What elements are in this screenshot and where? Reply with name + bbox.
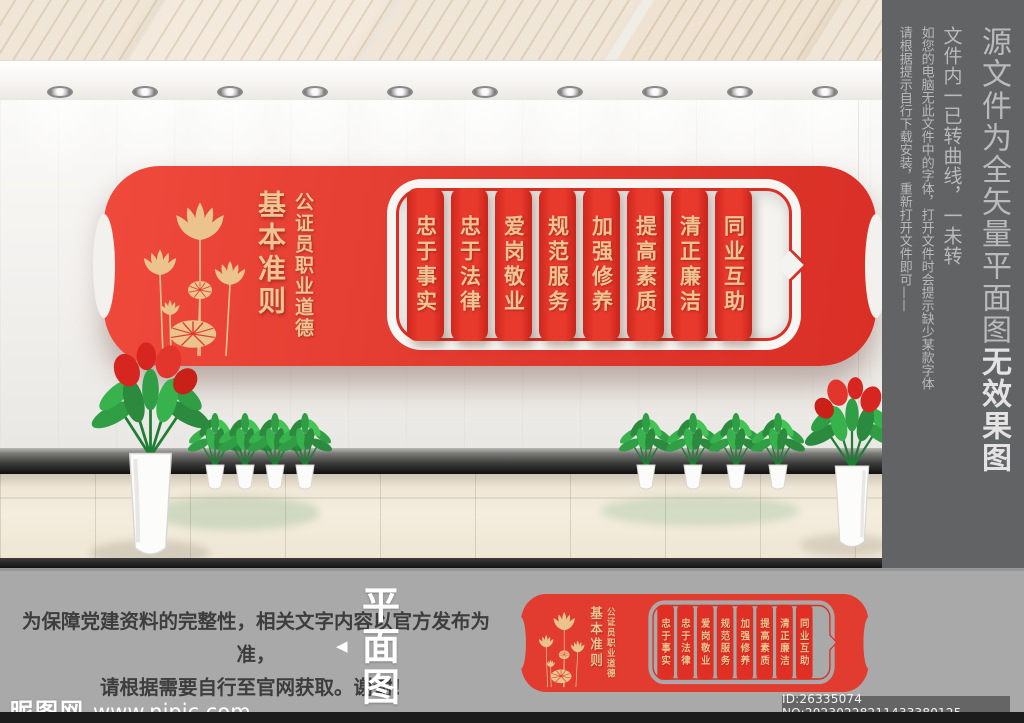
- strip-label: 加强修养: [587, 215, 617, 315]
- notes-text: 源文件为全矢量平面图无效果图 文件内一已转曲线，一未转 如您的电脑无此文件中的字…: [889, 26, 1010, 556]
- stock-preview-page: 基本准则 公证员职业道德 忠于事实 忠于法律 爱岗敬业 规范服务 加强修养 提高…: [0, 0, 1024, 723]
- ethics-strip: 清正廉洁: [671, 188, 708, 341]
- strip-label: 清正廉洁: [675, 215, 705, 315]
- spotlight-icon: [727, 86, 753, 98]
- note-title-normal: 源文件为全矢量平面图: [976, 26, 1011, 346]
- spotlight-icon: [812, 86, 838, 98]
- ceiling: [0, 0, 882, 62]
- culture-wall-banner: 基本准则 公证员职业道德 忠于事实 忠于法律 爱岗敬业 规范服务 加强修养 提高…: [104, 166, 876, 366]
- ethics-strip: 加强修养: [583, 188, 620, 341]
- ethics-strip: 爱岗敬业: [697, 605, 714, 680]
- strip-label: 忠于法律: [455, 215, 485, 315]
- spotlight-strip: [0, 86, 882, 100]
- footer-band: 为保障党建资料的完整性，相关文字内容以官方发布为准， 请根据需要自行至官网获取。…: [0, 568, 1024, 712]
- strip-label: 爱岗敬业: [699, 618, 713, 667]
- ethics-strip: 忠于法律: [677, 605, 694, 680]
- strip-label: 同业互助: [719, 215, 749, 315]
- disclaimer-text: 为保障党建资料的完整性，相关文字内容以官方发布为准， 请根据需要自行至官网获取。…: [10, 605, 502, 704]
- banner-title-main: 基本准则: [587, 606, 605, 680]
- lotus-illustration-icon: [536, 600, 588, 688]
- strip-label: 忠于法律: [679, 618, 693, 667]
- note-title-bold: 无效果图: [976, 346, 1011, 474]
- note-line-2: 如您的电脑无此文件中的字体，打开文件时会提示缺少某款字体: [918, 26, 933, 556]
- flat-view-label-group: ◀ 平面图: [336, 583, 406, 709]
- flat-banner-preview: 基本准则 公证员职业道德 忠于事实 忠于法律 爱岗敬业 规范服务 加强修养 提高…: [521, 594, 868, 692]
- ethics-strip: 爱岗敬业: [495, 188, 532, 341]
- note-line-1: 文件内一已转曲线，一未转: [940, 26, 962, 556]
- banner-title-sub: 公证员职业道德: [605, 607, 617, 686]
- ethics-strip: 提高素质: [756, 605, 773, 680]
- spotlight-icon: [132, 86, 158, 98]
- strip-label: 爱岗敬业: [499, 215, 529, 315]
- ethics-strip: 规范服务: [717, 605, 734, 680]
- note-line-3: 请根据提示自行下载安装，重新打开文件即可——: [896, 26, 911, 556]
- ethics-strip: 忠于法律: [451, 188, 488, 341]
- spotlight-icon: [387, 86, 413, 98]
- plaque-left-notch: [93, 214, 115, 318]
- ethics-strip: 规范服务: [539, 188, 576, 341]
- strip-label: 加强修养: [738, 618, 752, 667]
- strip-label: 规范服务: [543, 215, 573, 315]
- ethics-strip: 忠于事实: [407, 188, 444, 341]
- potted-plant: [746, 409, 810, 493]
- disclaimer-line-1: 为保障党建资料的完整性，相关文字内容以官方发布为准，: [10, 605, 502, 671]
- planter-vase-right: [802, 376, 882, 556]
- left-arrow-icon: ◀: [336, 637, 348, 655]
- ethics-strip: 加强修养: [737, 605, 754, 680]
- floor-edge: [0, 558, 882, 568]
- lotus-illustration-icon: [138, 178, 253, 358]
- strip-label: 清正廉洁: [778, 618, 792, 667]
- strip-label: 提高素质: [758, 618, 772, 667]
- ethics-strips: 忠于事实 忠于法律 爱岗敬业 规范服务 加强修养 提高素质 清正廉洁 同业互助: [657, 605, 812, 680]
- culture-wall-banner-flat: 基本准则 公证员职业道德 忠于事实 忠于法律 爱岗敬业 规范服务 加强修养 提高…: [521, 594, 868, 692]
- ethics-strip: 清正廉洁: [776, 605, 793, 680]
- banner-title-sub: 公证员职业道德: [290, 192, 317, 354]
- potted-plant: [273, 409, 337, 493]
- plaque-left-notch: [516, 618, 526, 669]
- strip-label: 忠于事实: [659, 618, 673, 667]
- strip-label: 规范服务: [718, 618, 732, 667]
- ethics-strips: 忠于事实 忠于法律 爱岗敬业 规范服务 加强修养 提高素质 清正廉洁 同业互助: [407, 188, 752, 341]
- bottom-bar: [0, 712, 1024, 723]
- spotlight-icon: [47, 86, 73, 98]
- notes-sidebar: 源文件为全矢量平面图无效果图 文件内一已转曲线，一未转 如您的电脑无此文件中的字…: [882, 0, 1024, 568]
- plant-reflection: [600, 496, 800, 526]
- note-title: 源文件为全矢量平面图无效果图: [976, 26, 1011, 556]
- spotlight-icon: [642, 86, 668, 98]
- ethics-strip: 提高素质: [627, 188, 664, 341]
- strip-label: 提高素质: [631, 215, 661, 315]
- ethics-strip: 同业互助: [796, 605, 813, 680]
- strip-label: 同业互助: [798, 618, 812, 667]
- room-scene: 基本准则 公证员职业道德 忠于事实 忠于法律 爱岗敬业 规范服务 加强修养 提高…: [0, 0, 882, 568]
- flat-view-label: 平面图: [351, 585, 406, 708]
- banner-title-main: 基本准则: [250, 190, 290, 340]
- spotlight-icon: [302, 86, 328, 98]
- plaque-right-notch: [865, 214, 882, 318]
- ethics-strip: 同业互助: [715, 188, 752, 341]
- plaque-right-notch: [863, 618, 873, 669]
- spotlight-icon: [557, 86, 583, 98]
- spotlight-icon: [472, 86, 498, 98]
- strip-label: 忠于事实: [411, 215, 441, 315]
- ethics-strip: 忠于事实: [657, 605, 674, 680]
- spotlight-icon: [217, 86, 243, 98]
